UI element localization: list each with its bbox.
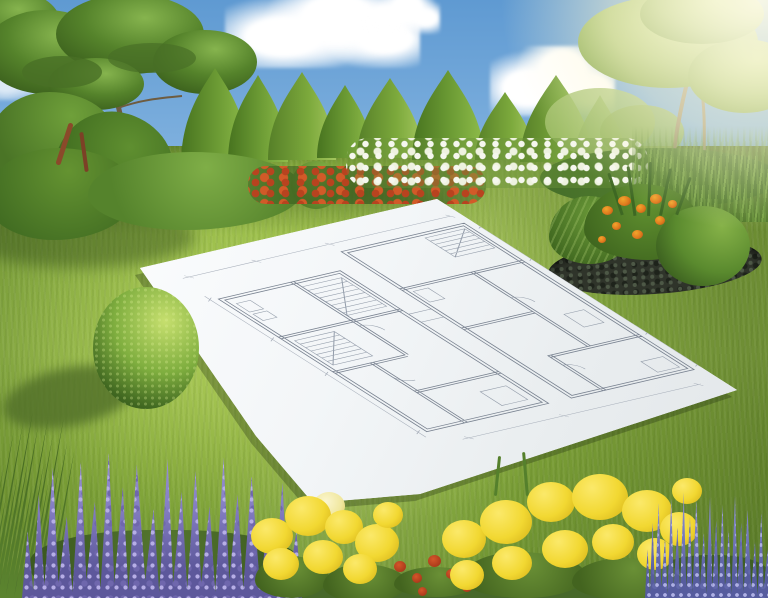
yellow-flower (263, 548, 299, 580)
yellow-flower (285, 496, 331, 536)
topiary-ball (93, 287, 199, 409)
orange-flower (598, 236, 606, 243)
orange-flower (632, 230, 643, 239)
clipped-dome-bush (656, 206, 750, 286)
white-flower-border (346, 138, 648, 188)
orange-flower (602, 206, 613, 215)
yellow-flower (637, 538, 673, 570)
orange-flower (650, 194, 662, 204)
yellow-flower (572, 474, 628, 520)
yellow-flower (303, 540, 343, 574)
yellow-flower (592, 524, 634, 560)
orange-flower (612, 222, 621, 230)
red-flower (412, 573, 422, 583)
yellow-flower (492, 546, 532, 580)
yellow-flower (672, 478, 702, 504)
orange-flower (668, 200, 677, 208)
orange-flower (655, 216, 665, 225)
yellow-flower (450, 560, 484, 590)
yellow-flower (373, 502, 403, 528)
yellow-flower (542, 530, 588, 568)
yellow-flower (343, 554, 377, 584)
red-flower (418, 587, 427, 596)
red-flower (394, 561, 406, 572)
garden-render (0, 0, 768, 598)
orange-flower (636, 204, 646, 213)
yellow-flower (527, 482, 575, 522)
yellow-flower (480, 500, 532, 544)
yellow-cluster-left (245, 490, 410, 598)
orange-flower (618, 196, 631, 206)
